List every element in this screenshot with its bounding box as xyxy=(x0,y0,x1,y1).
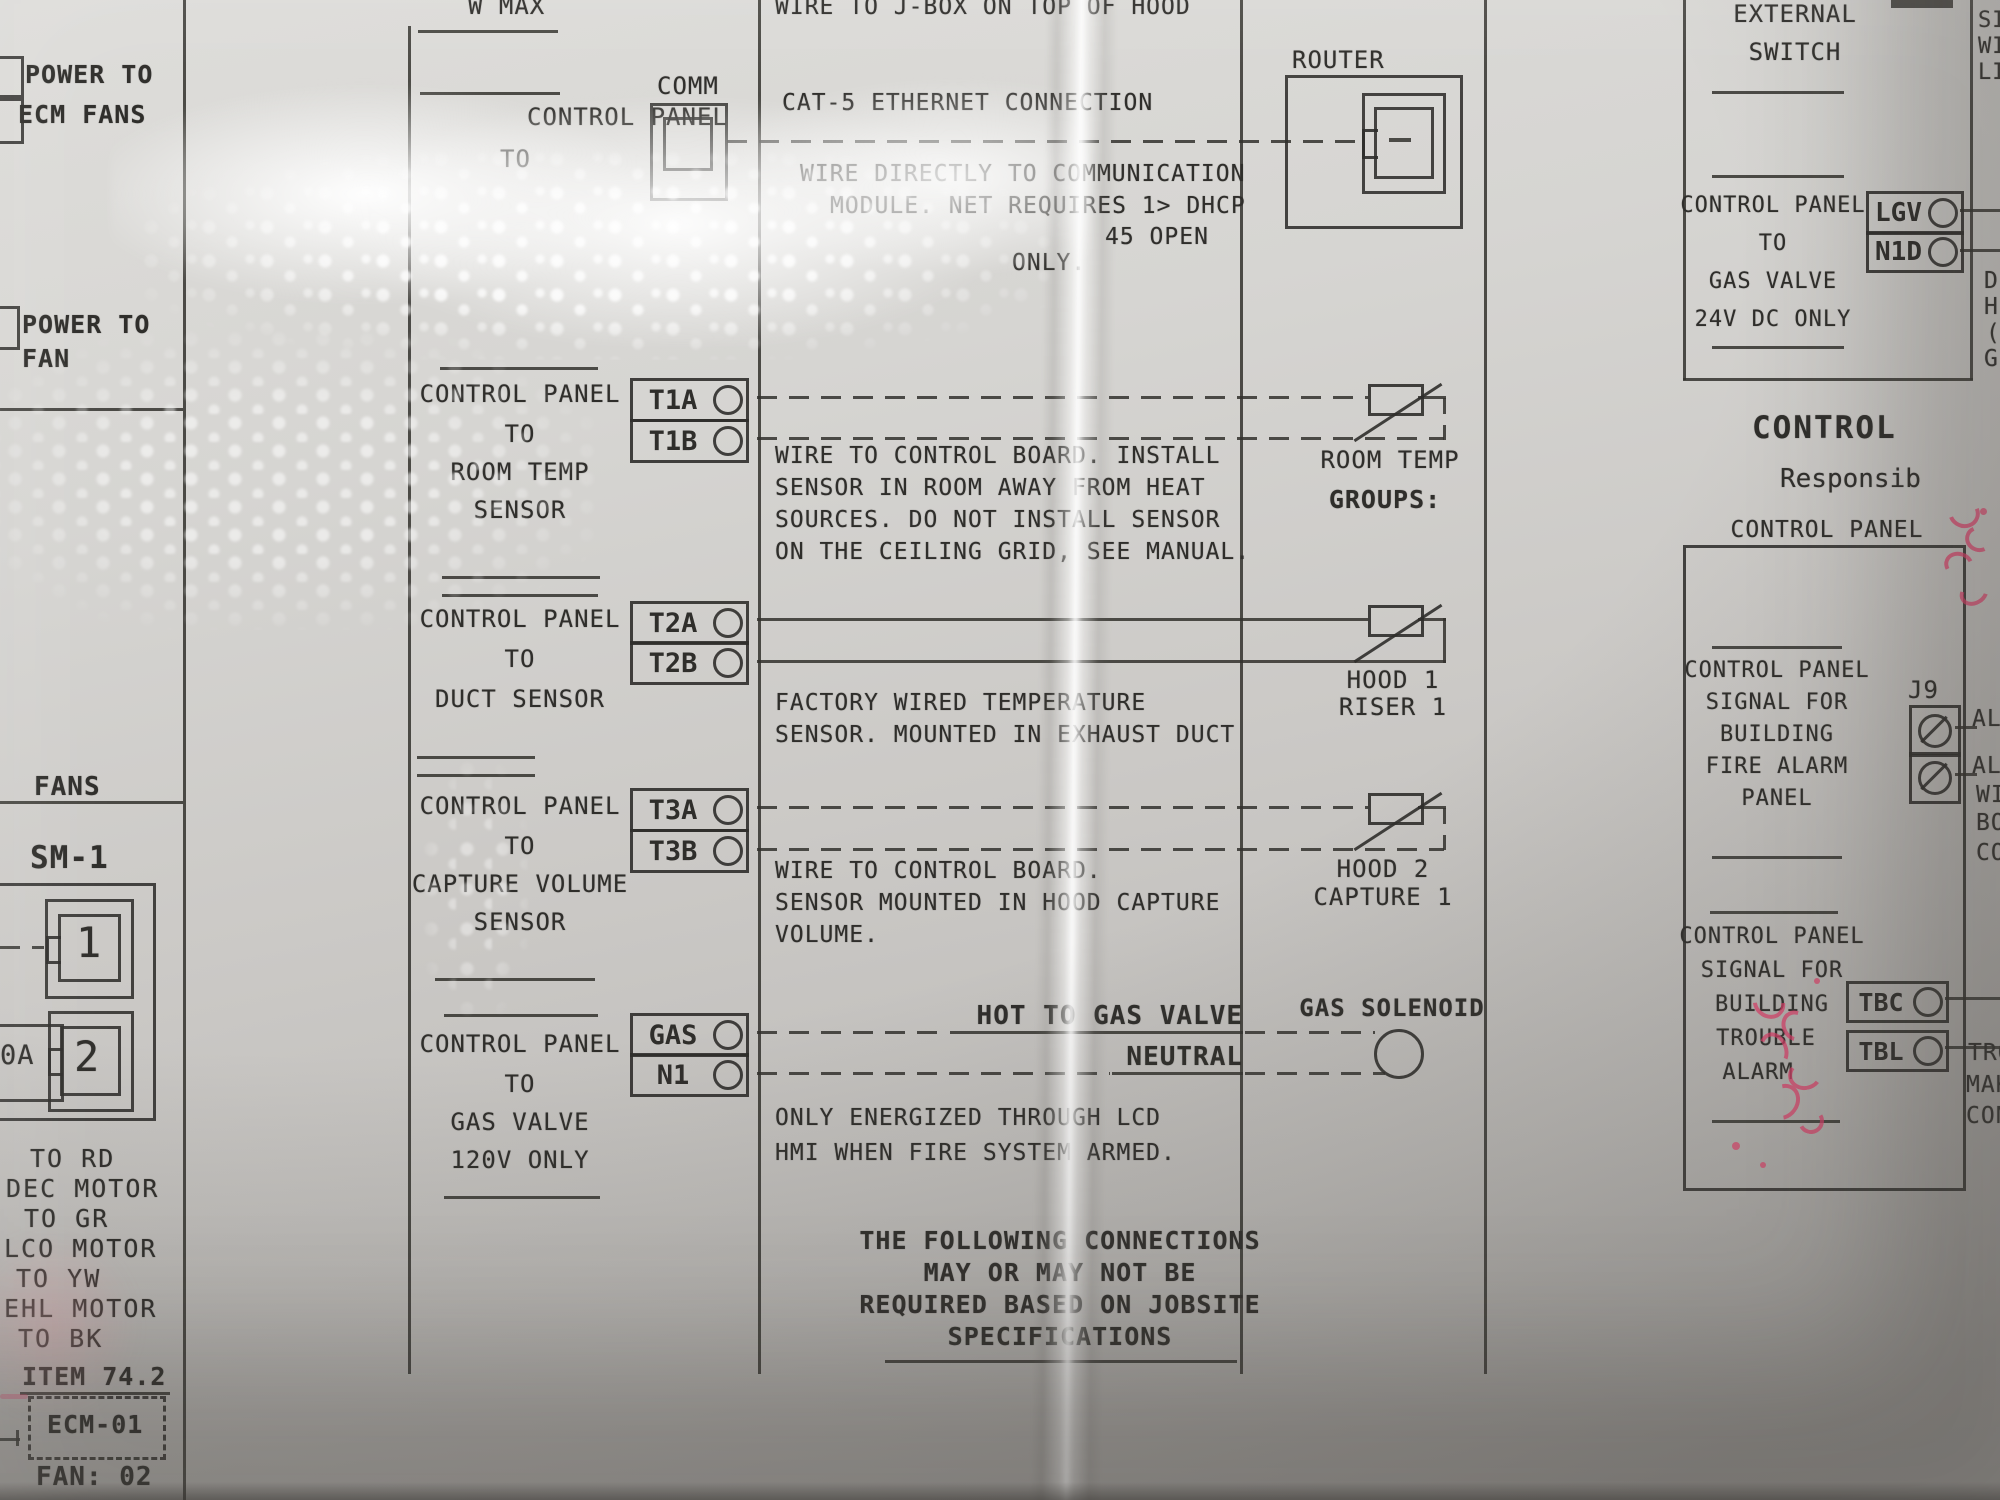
control-heading: CONTROL xyxy=(1752,410,1897,446)
screw-terminal-icon xyxy=(1909,752,1961,804)
duct-note: SENSOR. MOUNTED IN EXHAUST DUCT xyxy=(775,722,1235,748)
room-temp-note: SENSOR IN ROOM AWAY FROM HEAT xyxy=(775,475,1206,501)
edge-fragment: G xyxy=(1984,346,1999,372)
edge-fragment: ( xyxy=(1986,320,2000,346)
terminal-screw-icon xyxy=(713,836,743,866)
edge-fragment: CO xyxy=(1976,840,2000,866)
wire xyxy=(0,1438,30,1441)
terminal-gas: GAS xyxy=(630,1013,749,1057)
edge-fragment: BO xyxy=(1976,810,2000,836)
terminal-screw-icon xyxy=(713,648,743,678)
control-panel-box xyxy=(1683,545,1966,1191)
hot-label: HOT TO GAS VALVE xyxy=(977,1001,1243,1031)
comm-note: 45 OPEN xyxy=(1105,224,1209,250)
terminal-tbl: TBL xyxy=(1846,1030,1949,1072)
gas24-label: CONTROL PANEL xyxy=(1680,193,1865,218)
terminal-label: LGV xyxy=(1869,198,1928,228)
screw-circle-icon xyxy=(1918,714,1952,748)
ext-box-left xyxy=(1683,0,1686,380)
section-rule xyxy=(1712,346,1844,349)
terminal-screw-icon xyxy=(1928,198,1958,228)
hood1-label: HOOD 1 xyxy=(1347,666,1440,694)
terminal-t3b: T3B xyxy=(630,829,749,873)
duct-label: TO xyxy=(505,645,536,673)
terminal-t2a: T2A xyxy=(630,601,749,645)
edge-fragment: LI xyxy=(1978,60,2000,85)
edge-fragment: TRO xyxy=(1968,1040,2000,1066)
pink-tint xyxy=(0,1230,140,1420)
wire-label: TO GR xyxy=(24,1204,109,1233)
jack-2-number: 2 xyxy=(74,1032,100,1081)
terminal-n1d: N1D xyxy=(1866,231,1964,273)
terminal-n1: N1 xyxy=(630,1053,749,1097)
glare-speckle xyxy=(0,330,600,630)
jack-notch xyxy=(46,936,61,964)
fans-box-top xyxy=(0,801,183,804)
terminal-t1a: T1A xyxy=(630,378,749,422)
terminal-label: TBC xyxy=(1849,988,1913,1017)
terminal-label: TBL xyxy=(1849,1037,1913,1066)
responsibility-fragment: Responsib xyxy=(1780,464,1921,494)
terminal-label: N1 xyxy=(633,1060,713,1091)
room-temp-group-label: GROUPS: xyxy=(1329,485,1441,514)
section-rule xyxy=(417,756,535,759)
capture-note: VOLUME. xyxy=(775,922,879,948)
fire-alarm-label: BUILDING xyxy=(1720,722,1834,747)
jack-1-number: 1 xyxy=(76,918,102,967)
temp-sensor-icon xyxy=(1368,384,1424,416)
wire xyxy=(1945,997,2000,1000)
glare-speckle xyxy=(420,760,530,1020)
terminal-screw-icon xyxy=(1928,237,1958,267)
room-temp-note: SOURCES. DO NOT INSTALL SENSOR xyxy=(775,507,1220,533)
terminal-fragment xyxy=(0,56,24,98)
terminal-screw-icon xyxy=(1913,1036,1943,1066)
section-rule xyxy=(1712,856,1842,859)
wattage-fragment: W MAX xyxy=(468,0,545,20)
section-rule xyxy=(418,30,558,33)
terminal-label: T3A xyxy=(633,795,713,826)
external-switch-label: SWITCH xyxy=(1749,38,1842,66)
gas-label: GAS VALVE xyxy=(450,1108,589,1136)
gas-note: HMI WHEN FIRE SYSTEM ARMED. xyxy=(775,1140,1176,1166)
wire xyxy=(757,1031,947,1034)
fire-alarm-label: CONTROL PANEL xyxy=(1684,658,1869,683)
edge-fragment: WI xyxy=(1978,34,2000,59)
gas24-label: TO xyxy=(1759,231,1788,256)
edge-fragment: D xyxy=(1984,268,1999,294)
wire-tick xyxy=(16,1430,19,1446)
edge-fragment: WI xyxy=(1976,782,2000,808)
fire-alarm-label: FIRE ALARM xyxy=(1706,754,1848,779)
wire xyxy=(1960,249,2000,252)
gas24-label: 24V DC ONLY xyxy=(1695,307,1852,332)
wire xyxy=(0,946,44,949)
terminal-screw-icon xyxy=(713,426,743,456)
terminal-label: GAS xyxy=(633,1020,713,1051)
room-temp-group-label: ROOM TEMP xyxy=(1320,446,1459,474)
trouble-label: SIGNAL FOR xyxy=(1701,958,1843,983)
photo-bottom-shadow xyxy=(0,1482,2000,1500)
control-panel-header: CONTROL PANEL xyxy=(1730,517,1923,543)
wire xyxy=(1443,808,1446,850)
marker-dot xyxy=(1760,1162,1766,1168)
edge-fragment: H xyxy=(1984,294,1999,320)
marker-dot xyxy=(1814,978,1820,984)
photographed-wiring-diagram: POWER TO ECM FANS POWER TO FAN FANS SM-1… xyxy=(0,0,2000,1500)
edge-fragment-box xyxy=(1891,0,1953,8)
external-switch-label: EXTERNAL xyxy=(1733,0,1857,28)
wire xyxy=(1245,1031,1375,1034)
router-label: ROUTER xyxy=(1292,46,1385,74)
neutral-underline xyxy=(1112,1072,1243,1075)
router-pin xyxy=(1389,138,1411,142)
wire xyxy=(1443,618,1446,663)
jack-notch xyxy=(1362,129,1378,159)
gas-solenoid-label: GAS SOLENOID xyxy=(1299,994,1484,1022)
terminal-t3a: T3A xyxy=(630,788,749,832)
terminal-label: N1D xyxy=(1869,237,1928,267)
room-temp-note: WIRE TO CONTROL BOARD. INSTALL xyxy=(775,443,1220,469)
gas24-label: GAS VALVE xyxy=(1709,269,1837,294)
edge-fragment: MAK xyxy=(1966,1072,2000,1098)
gas-label: 120V ONLY xyxy=(450,1146,589,1174)
terminal-screw-icon xyxy=(713,385,743,415)
fans-header: FANS xyxy=(34,772,101,802)
marker-dot xyxy=(1980,508,1987,515)
terminal-label: T1A xyxy=(633,385,713,416)
hood2-label: CAPTURE 1 xyxy=(1313,883,1452,911)
terminal-lgv: LGV xyxy=(1866,191,1964,235)
terminal-label: T2A xyxy=(633,608,713,639)
j9-connector-label: J9 xyxy=(1908,676,1939,704)
gas-label: CONTROL PANEL xyxy=(420,1030,621,1058)
router-jack-inner xyxy=(1374,107,1434,179)
wire xyxy=(1443,398,1446,440)
edge-fragment: SI xyxy=(1978,8,2000,33)
section-rule xyxy=(1712,175,1844,178)
wire-label: TO RD xyxy=(30,1144,115,1173)
wire xyxy=(1245,1072,1385,1075)
terminal-label: T1B xyxy=(633,426,713,457)
terminal-screw-icon xyxy=(713,1020,743,1050)
gas-solenoid-icon xyxy=(1374,1029,1424,1079)
edge-fragment: AL1 xyxy=(1972,706,2000,732)
terminal-screw-icon xyxy=(713,795,743,825)
divider-symbol-right xyxy=(1484,0,1487,1374)
ext-box-bottom xyxy=(1683,378,1973,381)
terminal-t1b: T1B xyxy=(630,419,749,463)
wire xyxy=(1960,209,2000,212)
hood2-label: HOOD 2 xyxy=(1337,855,1430,883)
temp-sensor-icon xyxy=(1368,793,1424,825)
temp-sensor-icon xyxy=(1368,605,1424,637)
edge-fragment: CON xyxy=(1966,1103,2000,1129)
terminal-label: T2B xyxy=(633,648,713,679)
duct-label: DUCT SENSOR xyxy=(435,685,605,713)
terminal-label: T3B xyxy=(633,836,713,867)
neutral-label: NEUTRAL xyxy=(1126,1042,1243,1072)
marker-dot xyxy=(1732,1142,1740,1150)
hood1-label: RISER 1 xyxy=(1339,693,1447,721)
fire-alarm-label: SIGNAL FOR xyxy=(1706,690,1848,715)
section-rule xyxy=(1710,911,1838,914)
section-rule xyxy=(1712,91,1844,94)
section-rule xyxy=(444,1196,600,1199)
wire-label: DEC MOTOR xyxy=(6,1174,159,1203)
section-rule xyxy=(1712,646,1842,649)
terminal-screw-icon xyxy=(1913,987,1943,1017)
capture-note: SENSOR MOUNTED IN HOOD CAPTURE xyxy=(775,890,1220,916)
glare-speckle xyxy=(140,150,1060,360)
fan-module-label: SM-1 xyxy=(30,840,109,876)
trouble-label: CONTROL PANEL xyxy=(1679,924,1864,949)
screw-circle-icon xyxy=(1918,761,1952,795)
terminal-tbc: TBC xyxy=(1846,981,1949,1023)
fire-alarm-label: PANEL xyxy=(1741,786,1812,811)
edge-fragment: AL2 xyxy=(1972,753,2000,779)
screw-terminal-icon xyxy=(1909,705,1961,757)
jbox-note: WIRE TO J-BOX ON TOP OF HOOD xyxy=(775,0,1191,20)
gas-label: TO xyxy=(505,1070,536,1098)
terminal-t2b: T2B xyxy=(630,641,749,685)
terminal-screw-icon xyxy=(713,1060,743,1090)
room-temp-note: ON THE CEILING GRID, SEE MANUAL. xyxy=(775,539,1250,565)
ext-box-right xyxy=(1970,0,1973,380)
terminal-screw-icon xyxy=(713,608,743,638)
plug-fragment-label: 0A xyxy=(0,1040,35,1071)
